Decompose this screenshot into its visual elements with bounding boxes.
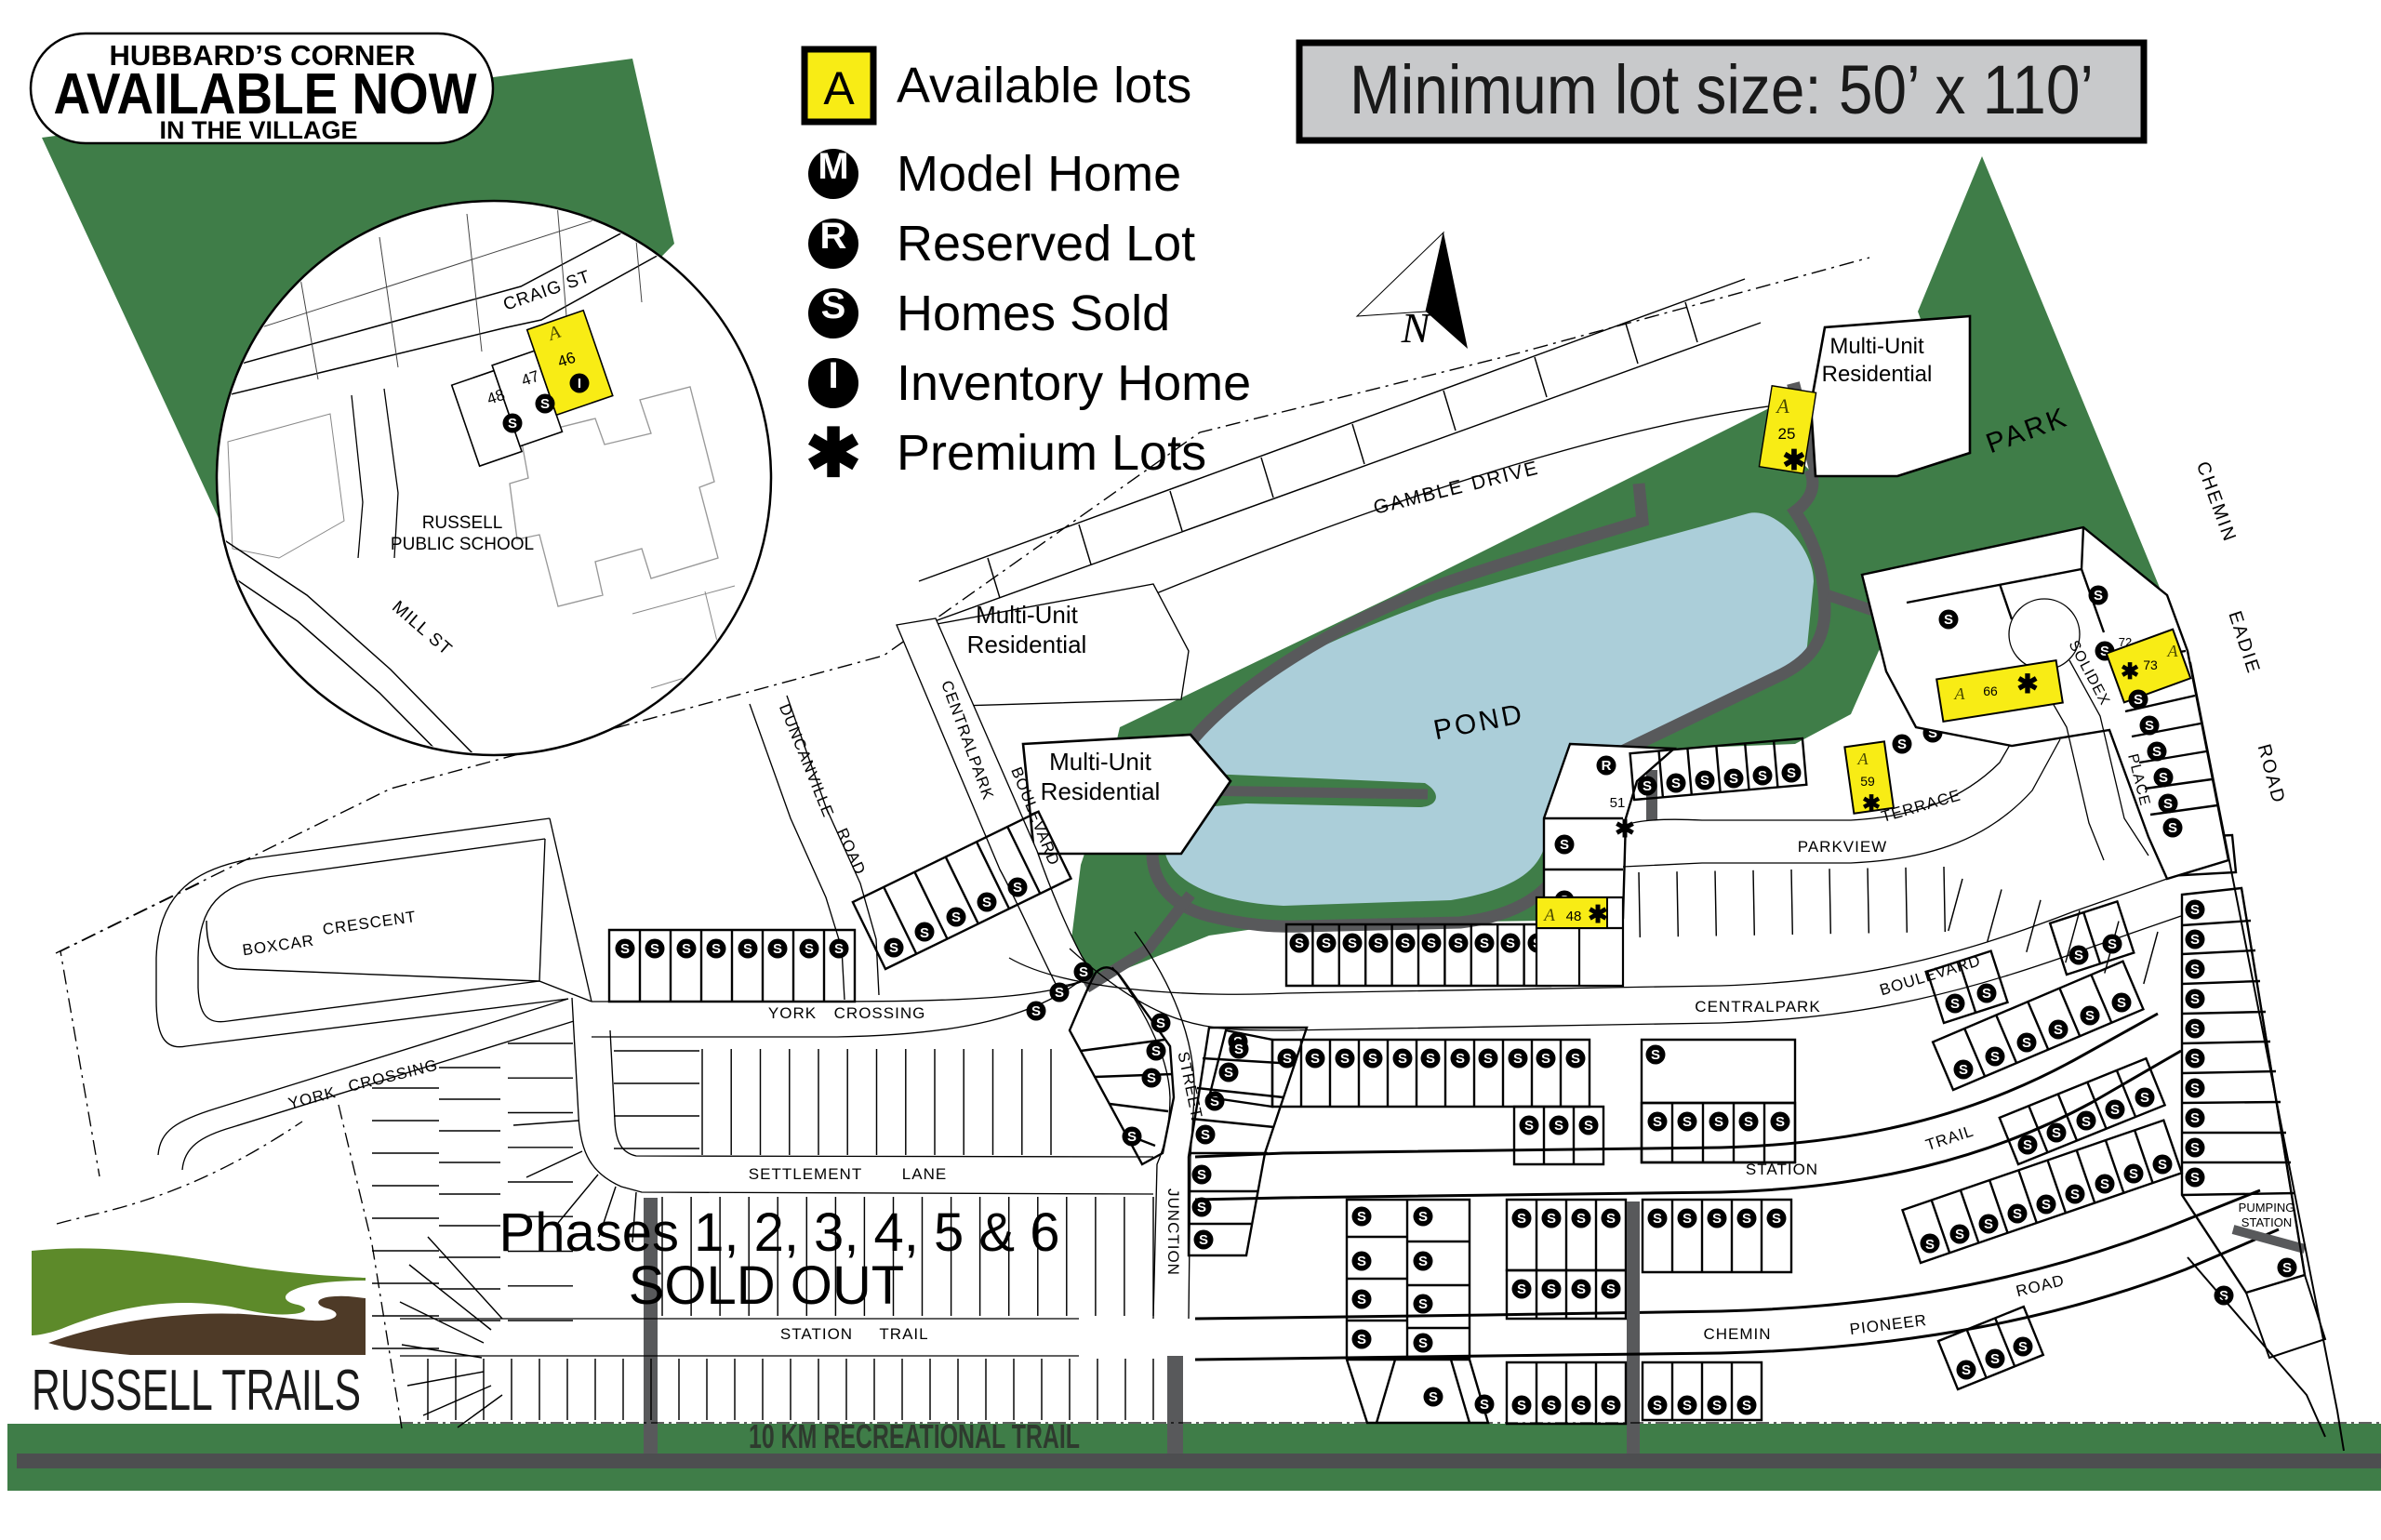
svg-text:51: 51	[1610, 795, 1626, 811]
svg-text:✱: ✱	[2121, 659, 2139, 684]
svg-text:S: S	[1156, 1016, 1165, 1031]
svg-text:S: S	[1547, 1398, 1556, 1414]
svg-text:S: S	[2282, 1260, 2292, 1276]
svg-text:S: S	[2190, 1170, 2200, 1186]
svg-text:S: S	[2145, 718, 2154, 734]
svg-text:CROSSING: CROSSING	[834, 1004, 926, 1022]
svg-text:S: S	[1480, 1397, 1489, 1413]
svg-text:S: S	[1950, 996, 1960, 1012]
svg-text:S: S	[1955, 1227, 1964, 1242]
svg-text:Multi-Unit: Multi-Unit	[1829, 334, 1924, 359]
svg-text:S: S	[1541, 1051, 1550, 1067]
svg-text:S: S	[1374, 936, 1383, 951]
svg-text:STATION: STATION	[780, 1325, 853, 1343]
svg-text:S: S	[1283, 1051, 1292, 1067]
svg-text:S: S	[1147, 1070, 1156, 1086]
svg-text:S: S	[1517, 1211, 1526, 1227]
svg-text:Multi-Unit: Multi-Unit	[1049, 748, 1152, 776]
svg-text:S: S	[1197, 1167, 1206, 1183]
svg-text:S: S	[2190, 1021, 2200, 1037]
svg-text:S: S	[650, 941, 659, 957]
svg-text:S: S	[1653, 1398, 1662, 1414]
svg-text:S: S	[1772, 1211, 1781, 1227]
svg-text:S: S	[1357, 1292, 1366, 1308]
svg-text:S: S	[1742, 1398, 1751, 1414]
svg-text:S: S	[2052, 1125, 2061, 1141]
svg-text:S: S	[2190, 991, 2200, 1007]
svg-text:S: S	[2190, 1110, 2200, 1126]
svg-text:S: S	[1547, 1281, 1556, 1297]
svg-text:S: S	[1418, 1254, 1428, 1269]
svg-text:S: S	[1576, 1211, 1586, 1227]
svg-text:S: S	[1576, 1281, 1586, 1297]
svg-text:S: S	[1606, 1398, 1616, 1414]
svg-text:S: S	[982, 895, 991, 910]
svg-text:S: S	[2163, 796, 2173, 812]
svg-text:S: S	[834, 941, 844, 957]
svg-text:S: S	[1982, 986, 1991, 1002]
svg-text:S: S	[2100, 1176, 2109, 1192]
svg-text:✱: ✱	[1588, 900, 1608, 928]
svg-text:A: A	[1857, 750, 1869, 768]
svg-text:✱: ✱	[805, 417, 861, 491]
svg-text:YORK: YORK	[768, 1004, 817, 1022]
svg-text:✱: ✱	[1615, 815, 1635, 843]
svg-text:S: S	[2074, 948, 2083, 963]
svg-text:I: I	[828, 355, 838, 396]
svg-text:S: S	[1322, 936, 1331, 951]
svg-text:S: S	[1151, 1043, 1161, 1059]
svg-text:Residential: Residential	[1041, 777, 1161, 805]
svg-text:S: S	[2158, 1157, 2167, 1173]
svg-text:IN THE VILLAGE: IN THE VILLAGE	[159, 116, 357, 144]
svg-text:M: M	[818, 146, 848, 187]
svg-text:S: S	[540, 396, 550, 412]
svg-text:S: S	[1210, 1094, 1219, 1109]
svg-text:S: S	[1340, 1051, 1350, 1067]
svg-text:Premium Lots: Premium Lots	[897, 425, 1206, 481]
svg-text:S: S	[1683, 1211, 1692, 1227]
svg-text:S: S	[1787, 765, 1796, 781]
svg-text:S: S	[2190, 962, 2200, 977]
svg-text:✱: ✱	[2016, 670, 2038, 698]
svg-text:S: S	[682, 941, 691, 957]
svg-text:S: S	[951, 909, 961, 925]
svg-text:S: S	[1401, 936, 1410, 951]
svg-text:S: S	[1295, 936, 1304, 951]
svg-text:S: S	[1729, 771, 1738, 787]
svg-text:Model Home: Model Home	[897, 146, 1181, 202]
svg-text:S: S	[1576, 1398, 1586, 1414]
svg-text:S: S	[1925, 1237, 1935, 1253]
svg-text:Residential: Residential	[1822, 362, 1933, 387]
svg-text:S: S	[1524, 1118, 1534, 1134]
svg-text:S: S	[1700, 773, 1709, 789]
svg-text:S: S	[1127, 1129, 1137, 1145]
svg-text:S: S	[1368, 1051, 1377, 1067]
svg-text:S: S	[1426, 1051, 1435, 1067]
svg-text:S: S	[2159, 770, 2168, 786]
svg-text:S: S	[1506, 936, 1515, 951]
svg-text:✱: ✱	[1782, 445, 1805, 476]
svg-text:Available lots: Available lots	[897, 58, 1191, 113]
svg-text:S: S	[1758, 768, 1767, 784]
svg-text:A: A	[2167, 642, 2179, 660]
svg-text:S: S	[1653, 1211, 1662, 1227]
svg-text:S: S	[1554, 1118, 1563, 1134]
svg-text:S: S	[2152, 744, 2162, 760]
svg-text:S: S	[1418, 1335, 1428, 1351]
svg-text:Multi-Unit: Multi-Unit	[976, 601, 1079, 629]
svg-text:S: S	[1643, 778, 1652, 794]
svg-text:S: S	[1055, 985, 1064, 1001]
svg-text:PUBLIC SCHOOL: PUBLIC SCHOOL	[391, 535, 534, 554]
svg-text:S: S	[2129, 1166, 2138, 1182]
svg-text:S: S	[2190, 1081, 2200, 1096]
svg-text:S: S	[1606, 1281, 1616, 1297]
svg-text:SETTLEMENT: SETTLEMENT	[749, 1165, 862, 1183]
svg-text:S: S	[1651, 1047, 1660, 1063]
svg-text:Minimum lot size: 50’ x 110’: Minimum lot size: 50’ x 110’	[1350, 51, 2094, 128]
svg-text:S: S	[2190, 902, 2200, 918]
svg-text:S: S	[1653, 1114, 1662, 1130]
svg-text:S: S	[2117, 995, 2126, 1011]
svg-text:S: S	[1712, 1211, 1722, 1227]
svg-text:S: S	[1357, 1332, 1366, 1347]
svg-text:S: S	[1418, 1209, 1428, 1225]
svg-text:S: S	[2085, 1008, 2095, 1024]
svg-text:CHEMIN: CHEMIN	[1703, 1325, 1771, 1343]
svg-text:S: S	[2018, 1339, 2028, 1355]
svg-text:RUSSELL: RUSSELL	[422, 513, 503, 533]
svg-text:PARKVIEW: PARKVIEW	[1798, 838, 1887, 856]
svg-text:S: S	[1984, 1216, 1993, 1232]
svg-text:Reserved Lot: Reserved Lot	[897, 216, 1195, 272]
svg-text:S: S	[1398, 1051, 1407, 1067]
svg-text:S: S	[1671, 776, 1681, 791]
svg-text:S: S	[2054, 1022, 2063, 1038]
svg-text:A: A	[1954, 684, 1966, 703]
svg-text:S: S	[1201, 1127, 1210, 1143]
svg-text:✱: ✱	[1862, 791, 1881, 816]
svg-text:Homes Sold: Homes Sold	[897, 285, 1170, 341]
svg-text:S: S	[2023, 1137, 2032, 1153]
svg-text:S: S	[1959, 1062, 1968, 1078]
svg-text:S: S	[1962, 1362, 1971, 1378]
svg-text:S: S	[1429, 1389, 1438, 1405]
svg-text:S: S	[1456, 1051, 1465, 1067]
svg-text:S: S	[2094, 588, 2103, 604]
svg-text:S: S	[2110, 1102, 2120, 1118]
svg-text:S: S	[1348, 936, 1357, 951]
svg-text:STATION: STATION	[2241, 1215, 2292, 1229]
svg-text:S: S	[508, 416, 517, 431]
svg-text:S: S	[1480, 936, 1489, 951]
svg-text:S: S	[1418, 1296, 1428, 1312]
svg-text:S: S	[2022, 1035, 2031, 1051]
svg-text:S: S	[1517, 1281, 1526, 1297]
svg-text:SOLD OUT: SOLD OUT	[629, 1255, 905, 1316]
svg-text:S: S	[1224, 1065, 1233, 1081]
svg-text:S: S	[1357, 1209, 1366, 1225]
svg-text:S: S	[1712, 1398, 1722, 1414]
svg-text:S: S	[1483, 1051, 1493, 1067]
svg-text:S: S	[2190, 932, 2200, 948]
svg-text:S: S	[1990, 1049, 2000, 1065]
svg-text:59: 59	[1860, 774, 1875, 789]
svg-text:S: S	[2134, 692, 2143, 708]
svg-text:S: S	[1357, 1254, 1366, 1269]
svg-text:S: S	[743, 941, 752, 957]
svg-text:S: S	[1990, 1351, 2000, 1367]
svg-text:S: S	[1606, 1211, 1616, 1227]
svg-text:A: A	[823, 62, 855, 114]
svg-text:S: S	[2190, 1140, 2200, 1156]
svg-text:I: I	[578, 376, 581, 392]
svg-text:S: S	[2042, 1197, 2051, 1213]
svg-text:S: S	[1683, 1114, 1692, 1130]
svg-text:R: R	[820, 216, 847, 257]
svg-text:S: S	[889, 940, 898, 956]
svg-text:S: S	[805, 941, 814, 957]
svg-text:S: S	[1560, 837, 1569, 853]
svg-text:N: N	[1401, 304, 1432, 352]
svg-text:Phases 1, 2, 3, 4, 5 & 6: Phases 1, 2, 3, 4, 5 & 6	[499, 1202, 1060, 1263]
svg-text:PUMPING: PUMPING	[2239, 1201, 2295, 1215]
svg-text:66: 66	[1983, 684, 1998, 698]
svg-text:S: S	[1031, 1003, 1041, 1019]
svg-text:S: S	[2168, 820, 2177, 836]
svg-text:S: S	[2190, 1051, 2200, 1067]
svg-text:JUNCTION: JUNCTION	[1164, 1188, 1182, 1276]
svg-text:S: S	[1013, 880, 1022, 896]
svg-text:S: S	[1547, 1211, 1556, 1227]
svg-text:S: S	[1234, 1042, 1244, 1057]
svg-text:S: S	[1571, 1051, 1580, 1067]
svg-text:S: S	[1897, 737, 1907, 752]
svg-text:S: S	[920, 925, 929, 941]
svg-text:TRAIL: TRAIL	[879, 1325, 928, 1343]
svg-text:S: S	[1744, 1114, 1753, 1130]
svg-text:LANE: LANE	[902, 1165, 947, 1183]
svg-text:S: S	[1683, 1398, 1692, 1414]
svg-text:S: S	[1584, 1118, 1593, 1134]
svg-text:73: 73	[2143, 657, 2158, 672]
svg-text:48: 48	[1566, 909, 1582, 924]
svg-text:S: S	[1776, 1114, 1785, 1130]
svg-text:RUSSELL TRAILS: RUSSELL TRAILS	[32, 1359, 361, 1423]
svg-text:S: S	[1742, 1211, 1751, 1227]
svg-text:25: 25	[1778, 425, 1796, 443]
svg-text:S: S	[1197, 1200, 1206, 1215]
svg-text:S: S	[620, 941, 630, 957]
svg-text:S: S	[712, 941, 721, 957]
svg-text:S: S	[1079, 964, 1088, 980]
svg-text:S: S	[2140, 1090, 2149, 1106]
svg-text:S: S	[2013, 1206, 2022, 1222]
svg-text:Residential: Residential	[967, 631, 1087, 658]
svg-text:S: S	[1513, 1051, 1523, 1067]
svg-text:S: S	[1517, 1398, 1526, 1414]
svg-text:Inventory Home: Inventory Home	[897, 355, 1251, 411]
svg-text:S: S	[2108, 936, 2117, 952]
svg-text:S: S	[773, 941, 782, 957]
svg-text:S: S	[1310, 1051, 1320, 1067]
svg-text:S: S	[1714, 1114, 1723, 1130]
svg-text:CENTRALPARK: CENTRALPARK	[1695, 998, 1820, 1016]
svg-text:S: S	[1199, 1232, 1208, 1248]
svg-text:S: S	[2082, 1114, 2091, 1130]
svg-text:S: S	[1454, 936, 1463, 951]
svg-text:S: S	[1944, 612, 1953, 628]
svg-text:S: S	[821, 285, 846, 326]
svg-text:A: A	[1775, 394, 1789, 418]
svg-text:S: S	[1427, 936, 1436, 951]
svg-text:S: S	[2070, 1187, 2080, 1202]
svg-text:R: R	[1602, 758, 1612, 774]
svg-text:A: A	[1542, 906, 1555, 925]
